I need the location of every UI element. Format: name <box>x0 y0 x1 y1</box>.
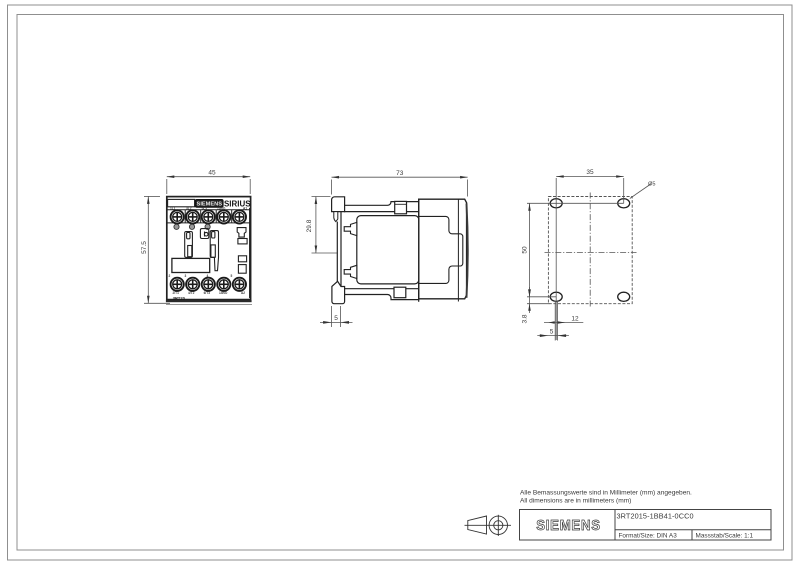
svg-text:3.8: 3.8 <box>522 314 529 323</box>
svg-text:Format/Size: DIN A3: Format/Size: DIN A3 <box>619 533 678 540</box>
svg-text:SIEMENS: SIEMENS <box>536 517 601 534</box>
svg-text:5: 5 <box>231 274 233 278</box>
svg-text:6/T3: 6/T3 <box>204 291 211 295</box>
svg-text:4/T2: 4/T2 <box>188 291 195 295</box>
svg-text:A2: A2 <box>241 291 245 295</box>
svg-text:50: 50 <box>522 246 529 254</box>
svg-text:5: 5 <box>550 328 554 335</box>
svg-text:12: 12 <box>571 316 579 323</box>
svg-text:45: 45 <box>208 170 216 177</box>
svg-text:73: 73 <box>396 170 404 177</box>
svg-text:Massstab/Scale: 1:1: Massstab/Scale: 1:1 <box>696 533 754 540</box>
svg-text:5: 5 <box>334 315 338 322</box>
svg-text:3: 3 <box>185 274 187 278</box>
svg-text:2/T1: 2/T1 <box>173 291 180 295</box>
svg-text:Alle Bemassungswerte sind in M: Alle Bemassungswerte sind in Millimeter … <box>520 490 692 497</box>
svg-text:2: 2 <box>169 274 171 278</box>
svg-text:Ø5: Ø5 <box>648 182 655 188</box>
svg-text:57.5: 57.5 <box>141 241 148 254</box>
svg-text:29.8: 29.8 <box>306 219 313 232</box>
svg-text:A1: A1 <box>243 206 247 210</box>
svg-text:SIRIUS: SIRIUS <box>224 199 251 208</box>
svg-text:14NO: 14NO <box>219 291 228 295</box>
svg-text:3RT2015-1BB41-0CC0: 3RT2015-1BB41-0CC0 <box>617 512 694 521</box>
svg-text:3RT20: 3RT20 <box>173 295 186 300</box>
svg-text:All dimensions are in millimet: All dimensions are in millimeters (mm) <box>520 498 631 505</box>
svg-text:35: 35 <box>586 169 594 176</box>
